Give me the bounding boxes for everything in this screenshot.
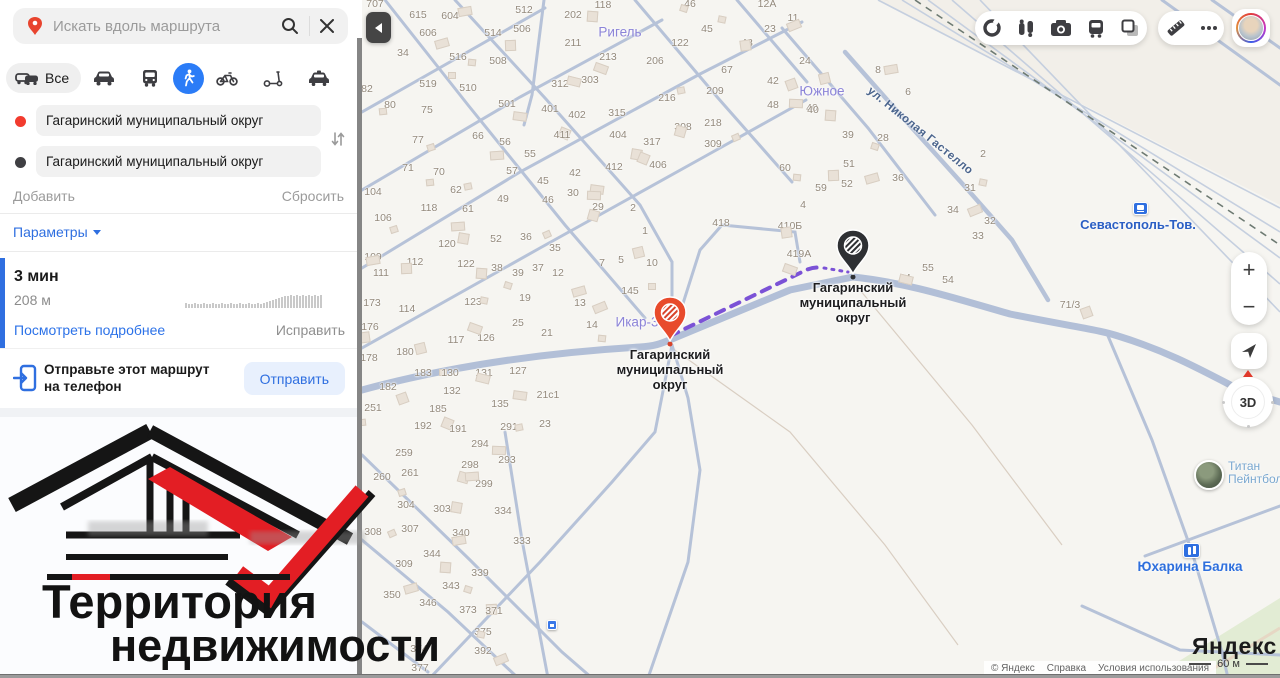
help-link[interactable]: Справка [1047, 663, 1086, 674]
route-duration: 3 мин [14, 268, 59, 286]
mode-car-button[interactable] [81, 70, 127, 86]
map-roads-layer [362, 0, 1280, 678]
map-attribution: © Яндекс Справка Условия использования [984, 661, 1216, 675]
map-canvas[interactable]: ул. Николая Гастелло Севастополь-Тов. Ти… [362, 0, 1280, 678]
waypoint-end-input[interactable] [46, 154, 311, 169]
pedestrian-icon [182, 69, 196, 87]
threed-button[interactable]: 3D [1231, 385, 1265, 419]
traffic-ring-icon[interactable] [981, 17, 1003, 39]
mode-scooter-button[interactable] [250, 70, 296, 87]
scooter-icon [263, 70, 283, 87]
route-distance: 208 м [14, 292, 51, 308]
layers-icon[interactable] [1119, 17, 1141, 39]
mode-all-button[interactable]: Все [6, 63, 81, 93]
avatar [1238, 15, 1264, 41]
zoom-out-button[interactable]: − [1243, 297, 1256, 317]
scale-bar: 60 м [1189, 658, 1268, 670]
reset-route-link[interactable]: Сбросить [282, 188, 344, 204]
photos-icon[interactable] [1049, 17, 1073, 39]
add-waypoint-link[interactable]: Добавить [13, 188, 75, 204]
route-details-link[interactable]: Посмотреть подробнее [14, 322, 165, 338]
swap-arrows-icon [330, 131, 346, 147]
chevron-down-icon [93, 230, 101, 235]
taxi-icon [308, 70, 330, 86]
car-icon [93, 70, 115, 86]
panoramas-icon[interactable] [1015, 17, 1037, 39]
waypoint-start-dot [15, 116, 26, 127]
swap-waypoints-button[interactable] [327, 128, 349, 150]
mode-all-label: Все [45, 70, 69, 86]
mode-taxi-button[interactable] [296, 70, 342, 86]
all-cars-icon [15, 71, 39, 85]
search-bar[interactable] [13, 8, 348, 44]
route-summary-card[interactable]: 3 мин 208 м Посмотреть подробнее Исправи… [0, 252, 357, 348]
mode-bike-button[interactable] [204, 71, 250, 86]
divider [0, 213, 357, 214]
more-options-icon[interactable] [1200, 25, 1218, 31]
bus-icon [141, 69, 159, 87]
zoom-control: + − [1231, 252, 1267, 325]
active-route-accent [0, 258, 5, 348]
collapse-panel-button[interactable] [366, 12, 391, 43]
waypoint-end-dot [15, 157, 26, 168]
transport-mode-row: Все [0, 60, 357, 96]
geolocation-button[interactable] [1231, 333, 1267, 369]
panel-scrollbar[interactable] [357, 38, 362, 678]
zoom-in-button[interactable]: + [1243, 260, 1256, 280]
waypoint-start-input[interactable] [46, 113, 311, 128]
route-panel: Все [0, 0, 357, 678]
route-fix-link[interactable]: Исправить [276, 322, 345, 338]
agency-logo-section [0, 408, 357, 674]
waypoint-start-field[interactable] [36, 105, 321, 136]
yandex-maps-app: ул. Николая Гастелло Севастополь-Тов. Ти… [0, 0, 1280, 678]
mode-pedestrian-button[interactable] [173, 63, 204, 94]
route-marker-start[interactable] [651, 296, 689, 342]
route-marker-end[interactable] [834, 229, 872, 275]
window-edge [0, 674, 1280, 678]
compass-3d-control[interactable]: 3D [1223, 377, 1273, 427]
send-button[interactable]: Отправить [244, 362, 345, 395]
scale-value: 60 м [1217, 658, 1240, 670]
search-icon[interactable] [281, 17, 299, 35]
map-toolbar-secondary [1158, 11, 1224, 45]
ruler-icon[interactable] [1165, 17, 1187, 39]
elevation-profile [185, 294, 333, 308]
copyright-text: © Яндекс [991, 663, 1035, 674]
location-arrow-icon [1240, 342, 1258, 360]
send-to-phone-icon [13, 364, 37, 392]
send-to-phone-block: Отправьте этот маршрут на телефон Отправ… [0, 348, 357, 408]
profile-button[interactable] [1232, 9, 1270, 47]
compass-north-icon [1243, 370, 1253, 377]
send-to-phone-text: Отправьте этот маршрут на телефон [44, 361, 209, 395]
params-toggle[interactable]: Параметры [13, 224, 101, 240]
route-marker-start-label: Гагаринский муниципальный округ [590, 347, 750, 392]
transport-icon[interactable] [1085, 17, 1107, 39]
search-input[interactable] [53, 18, 281, 35]
waypoint-end-field[interactable] [36, 146, 321, 177]
close-icon[interactable] [320, 19, 334, 33]
map-pin-icon [27, 16, 43, 36]
route-marker-end-label: Гагаринский муниципальный округ [773, 280, 933, 325]
bike-icon [216, 71, 238, 86]
divider [309, 16, 310, 36]
yandex-logo[interactable]: Яндекс [1192, 633, 1277, 660]
chevron-left-icon [375, 23, 382, 33]
avatar-ring [1236, 13, 1266, 43]
map-toolbar [975, 11, 1147, 45]
mode-bus-button[interactable] [127, 69, 173, 87]
